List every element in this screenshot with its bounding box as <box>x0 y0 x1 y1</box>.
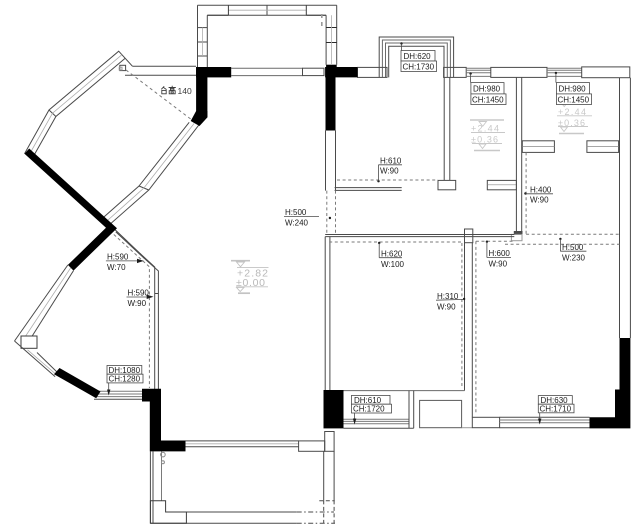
svg-text:H:500: H:500 <box>562 243 584 252</box>
svg-text:W:70: W:70 <box>107 263 126 272</box>
svg-text:W:240: W:240 <box>285 219 309 228</box>
svg-text:H:400: H:400 <box>530 185 552 194</box>
svg-text:W:90: W:90 <box>489 260 508 269</box>
svg-text:W:230: W:230 <box>562 253 586 262</box>
svg-text:±0.36: ±0.36 <box>558 118 585 128</box>
svg-text:DH:1080: DH:1080 <box>109 366 141 375</box>
svg-text:W:90: W:90 <box>128 299 147 308</box>
svg-text:DH:980: DH:980 <box>473 85 501 94</box>
svg-text:CH:1710: CH:1710 <box>540 405 572 414</box>
svg-text:CH:1280: CH:1280 <box>109 375 141 384</box>
svg-text:W:90: W:90 <box>437 302 456 311</box>
svg-text:±0.36: ±0.36 <box>471 135 498 145</box>
svg-text:W:100: W:100 <box>381 260 405 269</box>
svg-text:W:90: W:90 <box>380 167 399 176</box>
svg-text:CH:1450: CH:1450 <box>472 96 504 105</box>
svg-text:+2.44: +2.44 <box>471 124 499 134</box>
svg-text:CH:1720: CH:1720 <box>353 405 385 414</box>
svg-text:DH:980: DH:980 <box>559 85 587 94</box>
svg-text:CH:1730: CH:1730 <box>403 63 435 72</box>
svg-text:H:590: H:590 <box>107 252 129 261</box>
svg-text:W:90: W:90 <box>530 196 549 205</box>
svg-text:H:310: H:310 <box>437 292 459 301</box>
svg-text:H:590: H:590 <box>128 289 150 298</box>
svg-text:DH:610: DH:610 <box>354 396 382 405</box>
svg-text:DH:620: DH:620 <box>404 52 432 61</box>
svg-text:H:620: H:620 <box>381 249 403 258</box>
svg-text:H:600: H:600 <box>489 249 511 258</box>
svg-text:140: 140 <box>178 86 192 96</box>
svg-text:±0.00: ±0.00 <box>236 277 265 289</box>
svg-text:H:500: H:500 <box>285 208 307 217</box>
svg-text:CH:1450: CH:1450 <box>558 96 590 105</box>
svg-text:+2.44: +2.44 <box>558 107 586 117</box>
svg-text:H:610: H:610 <box>380 157 402 166</box>
